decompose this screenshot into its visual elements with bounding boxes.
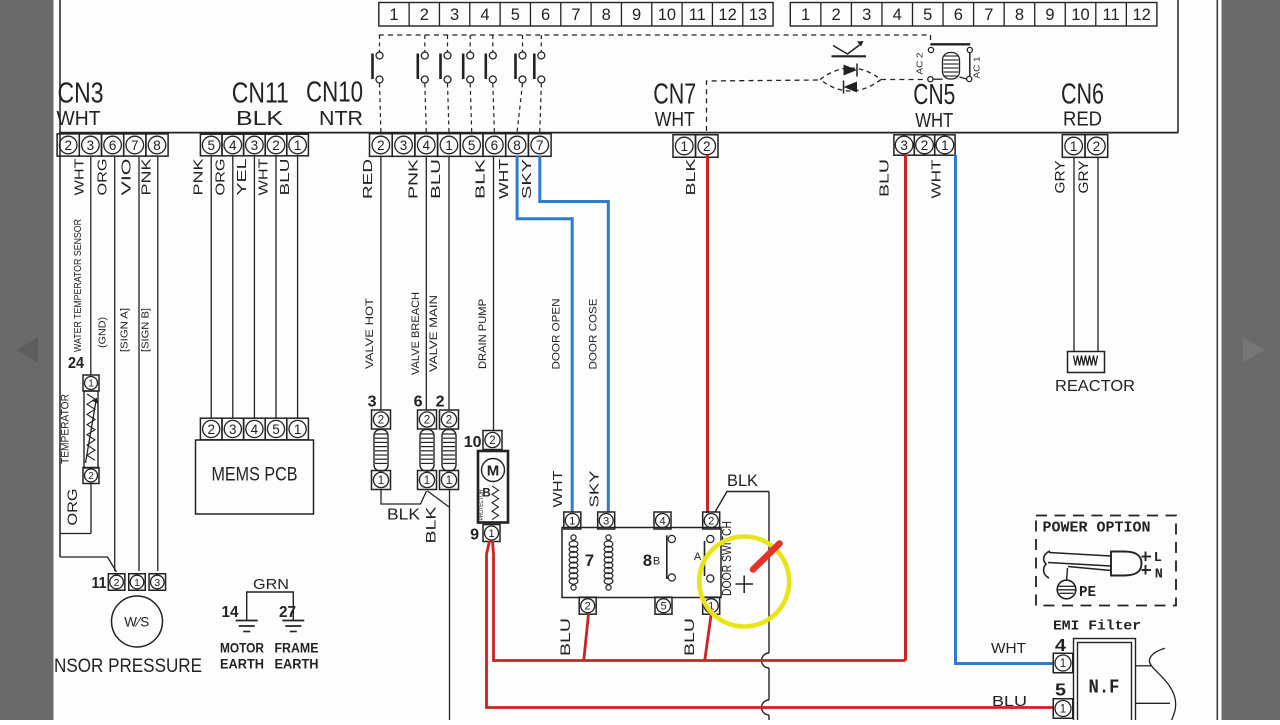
- svg-text:9: 9: [470, 527, 479, 544]
- svg-text:WHT: WHT: [550, 470, 565, 507]
- svg-text:8: 8: [602, 6, 611, 24]
- svg-text:4: 4: [480, 6, 489, 24]
- svg-text:7: 7: [536, 138, 544, 153]
- svg-text:BLU: BLU: [877, 159, 892, 197]
- svg-text:PE: PE: [1079, 584, 1096, 601]
- svg-text:WHT: WHT: [655, 109, 695, 131]
- svg-text:(GND): (GND): [97, 317, 109, 348]
- svg-text:6: 6: [541, 6, 550, 24]
- svg-text:1: 1: [446, 475, 452, 487]
- svg-text:1: 1: [389, 6, 398, 24]
- svg-text:CN7: CN7: [653, 79, 696, 111]
- svg-text:DOOR COSE: DOOR COSE: [588, 299, 600, 370]
- svg-text:SKY: SKY: [587, 470, 602, 507]
- svg-text:1: 1: [1060, 658, 1066, 670]
- svg-text:2: 2: [1093, 139, 1101, 154]
- svg-text:11: 11: [689, 6, 706, 24]
- svg-text:2: 2: [424, 415, 430, 427]
- svg-text:1: 1: [378, 475, 384, 487]
- svg-text:2: 2: [446, 415, 452, 427]
- svg-text:2: 2: [272, 138, 280, 153]
- svg-text:BLU: BLU: [428, 159, 443, 199]
- svg-text:1: 1: [941, 138, 949, 153]
- svg-text:7: 7: [571, 6, 580, 24]
- svg-text:10: 10: [1071, 6, 1089, 24]
- svg-text:CN5: CN5: [913, 79, 955, 111]
- svg-text:5: 5: [207, 138, 215, 153]
- svg-text:BLU: BLU: [681, 618, 697, 656]
- svg-text:WHT: WHT: [256, 158, 271, 195]
- svg-text:3: 3: [862, 6, 871, 24]
- svg-text:3: 3: [400, 138, 408, 153]
- svg-text:12: 12: [1132, 6, 1150, 24]
- svg-text:BLK: BLK: [424, 507, 439, 544]
- svg-text:A: A: [694, 551, 702, 563]
- svg-text:WHT: WHT: [915, 110, 953, 132]
- svg-text:[SIGN A]: [SIGN A]: [119, 308, 131, 352]
- svg-text:5: 5: [923, 6, 932, 24]
- svg-text:WHT: WHT: [929, 159, 944, 198]
- svg-text:PNK: PNK: [191, 158, 206, 195]
- svg-text:DRAIN PUMP: DRAIN PUMP: [477, 299, 489, 369]
- svg-text:CN3: CN3: [58, 78, 104, 110]
- svg-text:1: 1: [801, 6, 810, 24]
- svg-text:AC 2: AC 2: [915, 52, 925, 74]
- svg-text:6: 6: [414, 394, 423, 411]
- svg-text:3: 3: [251, 138, 259, 153]
- svg-text:6: 6: [491, 138, 499, 153]
- svg-text:3: 3: [154, 577, 160, 589]
- svg-text:BLK: BLK: [473, 158, 488, 199]
- svg-text:1: 1: [88, 379, 94, 390]
- svg-text:BLU: BLU: [277, 159, 292, 196]
- svg-text:PNK: PNK: [139, 158, 154, 195]
- svg-text:WHT: WHT: [72, 158, 87, 195]
- svg-text:L: L: [1154, 551, 1162, 566]
- svg-text:WHT: WHT: [991, 641, 1026, 657]
- svg-text:POWER OPTION: POWER OPTION: [1043, 521, 1151, 537]
- svg-text:MOTOR: MOTOR: [220, 641, 264, 656]
- svg-text:RED: RED: [1063, 109, 1102, 131]
- svg-text:TEMPERATOR: TEMPERATOR: [60, 394, 72, 464]
- svg-text:2: 2: [114, 577, 120, 589]
- svg-text:BLK: BLK: [236, 108, 284, 130]
- svg-text:2: 2: [489, 435, 495, 447]
- svg-text:6: 6: [954, 6, 963, 24]
- svg-text:CN10: CN10: [306, 77, 363, 109]
- svg-text:8: 8: [513, 138, 521, 153]
- svg-text:DOOR OPEN: DOOR OPEN: [551, 298, 563, 369]
- svg-text:B: B: [653, 556, 660, 568]
- svg-text:1: 1: [569, 515, 575, 527]
- svg-text:W∕S: W∕S: [124, 615, 150, 630]
- svg-text:8: 8: [153, 138, 161, 153]
- svg-text:YEL: YEL: [234, 159, 249, 196]
- svg-text:1: 1: [1070, 139, 1078, 154]
- svg-text:4: 4: [659, 515, 665, 527]
- svg-text:2: 2: [832, 6, 841, 24]
- svg-text:6: 6: [109, 138, 117, 153]
- svg-text:BLU: BLU: [992, 694, 1027, 710]
- svg-text:4: 4: [893, 6, 902, 24]
- svg-text:4: 4: [1055, 635, 1066, 655]
- svg-text:11: 11: [92, 575, 107, 592]
- svg-text:1: 1: [488, 528, 494, 540]
- svg-text:2: 2: [921, 138, 929, 153]
- svg-text:NTR: NTR: [319, 108, 363, 130]
- svg-text:2: 2: [585, 601, 591, 613]
- svg-text:VALVE MAIN: VALVE MAIN: [428, 295, 440, 372]
- svg-text:GRY: GRY: [1076, 161, 1091, 194]
- svg-text:N.F: N.F: [1089, 677, 1120, 699]
- svg-text:EARTH: EARTH: [220, 657, 264, 672]
- svg-text:BLK: BLK: [387, 507, 420, 524]
- svg-text:2: 2: [420, 6, 429, 24]
- svg-text:7: 7: [585, 552, 594, 570]
- svg-text:5: 5: [272, 422, 280, 437]
- svg-text:WHT: WHT: [496, 159, 511, 199]
- svg-text:2: 2: [88, 471, 94, 482]
- svg-text:8: 8: [643, 552, 652, 570]
- svg-text:2: 2: [708, 515, 714, 527]
- svg-text:ORG: ORG: [65, 489, 80, 526]
- svg-text:2: 2: [378, 415, 384, 427]
- svg-text:5: 5: [511, 6, 520, 24]
- svg-text:BLU: BLU: [557, 618, 573, 656]
- svg-text:7: 7: [131, 138, 139, 153]
- svg-text:2: 2: [207, 422, 215, 437]
- svg-text:27: 27: [279, 604, 296, 621]
- svg-text:DOOR SWITCH: DOOR SWITCH: [719, 521, 734, 596]
- svg-text:M: M: [487, 463, 500, 480]
- svg-text:SKY: SKY: [519, 158, 534, 199]
- svg-text:CN6: CN6: [1061, 79, 1104, 111]
- svg-text:WHT: WHT: [57, 108, 101, 130]
- svg-text:1: 1: [680, 139, 688, 154]
- svg-text:GRY: GRY: [1053, 161, 1068, 194]
- svg-text:BLK: BLK: [727, 472, 758, 490]
- svg-text:EMI Filter: EMI Filter: [1053, 619, 1141, 635]
- svg-text:2: 2: [703, 139, 711, 154]
- svg-text:11: 11: [1103, 6, 1120, 24]
- svg-text:GRN: GRN: [253, 577, 289, 593]
- svg-text:24: 24: [68, 355, 84, 372]
- svg-text:3: 3: [603, 515, 609, 527]
- svg-text:1: 1: [1060, 704, 1066, 716]
- svg-text:AC 1: AC 1: [972, 56, 982, 78]
- svg-text:3: 3: [450, 6, 459, 24]
- svg-text:10: 10: [658, 6, 676, 24]
- svg-text:4: 4: [422, 138, 430, 153]
- svg-text:5: 5: [660, 601, 666, 613]
- svg-text:EARTH: EARTH: [275, 657, 319, 672]
- svg-text:PROTECTOR: PROTECTOR: [479, 489, 485, 521]
- svg-text:ORG: ORG: [212, 159, 227, 196]
- svg-text:5: 5: [468, 138, 476, 153]
- svg-text:REACTOR: REACTOR: [1055, 378, 1135, 395]
- svg-text:3: 3: [900, 138, 908, 153]
- svg-text:14: 14: [222, 604, 239, 621]
- svg-text:RED: RED: [360, 159, 375, 199]
- svg-text:FRAME: FRAME: [275, 641, 319, 656]
- svg-text:NSOR PRESSURE: NSOR PRESSURE: [54, 656, 202, 677]
- svg-text:N: N: [1155, 568, 1163, 583]
- svg-text:10: 10: [464, 434, 482, 451]
- svg-text:2: 2: [64, 138, 72, 153]
- svg-text:4: 4: [251, 422, 259, 437]
- svg-text:1: 1: [294, 138, 302, 153]
- svg-text:3: 3: [229, 422, 237, 437]
- svg-text:4: 4: [229, 138, 237, 153]
- svg-text:1: 1: [294, 422, 302, 437]
- svg-text:PNK: PNK: [405, 159, 420, 199]
- svg-text:VIO: VIO: [119, 159, 134, 196]
- svg-text:9: 9: [1045, 6, 1054, 24]
- svg-text:13: 13: [749, 6, 767, 24]
- svg-text:5: 5: [1055, 680, 1066, 700]
- svg-text:VALVE HOT: VALVE HOT: [364, 298, 376, 369]
- svg-text:1: 1: [424, 475, 430, 487]
- svg-text:2: 2: [436, 394, 445, 411]
- svg-text:3: 3: [368, 394, 377, 411]
- svg-text:CN11: CN11: [232, 78, 289, 110]
- svg-text:VALVE BREACH: VALVE BREACH: [410, 292, 422, 375]
- svg-text:WATER TEMPERATOR SENSOR: WATER TEMPERATOR SENSOR: [72, 219, 84, 352]
- svg-text:MEMS PCB: MEMS PCB: [212, 464, 298, 486]
- svg-text:9: 9: [632, 6, 641, 24]
- svg-text:[SIGN B]: [SIGN B]: [140, 308, 152, 352]
- svg-text:12: 12: [718, 6, 736, 24]
- svg-text:8: 8: [1015, 6, 1024, 24]
- svg-text:2: 2: [377, 138, 385, 153]
- svg-text:ORG: ORG: [95, 159, 110, 196]
- svg-text:1: 1: [445, 138, 453, 153]
- svg-text:3: 3: [87, 138, 95, 153]
- svg-text:1: 1: [134, 577, 140, 589]
- svg-text:BLK: BLK: [683, 158, 698, 195]
- svg-text:7: 7: [984, 6, 993, 24]
